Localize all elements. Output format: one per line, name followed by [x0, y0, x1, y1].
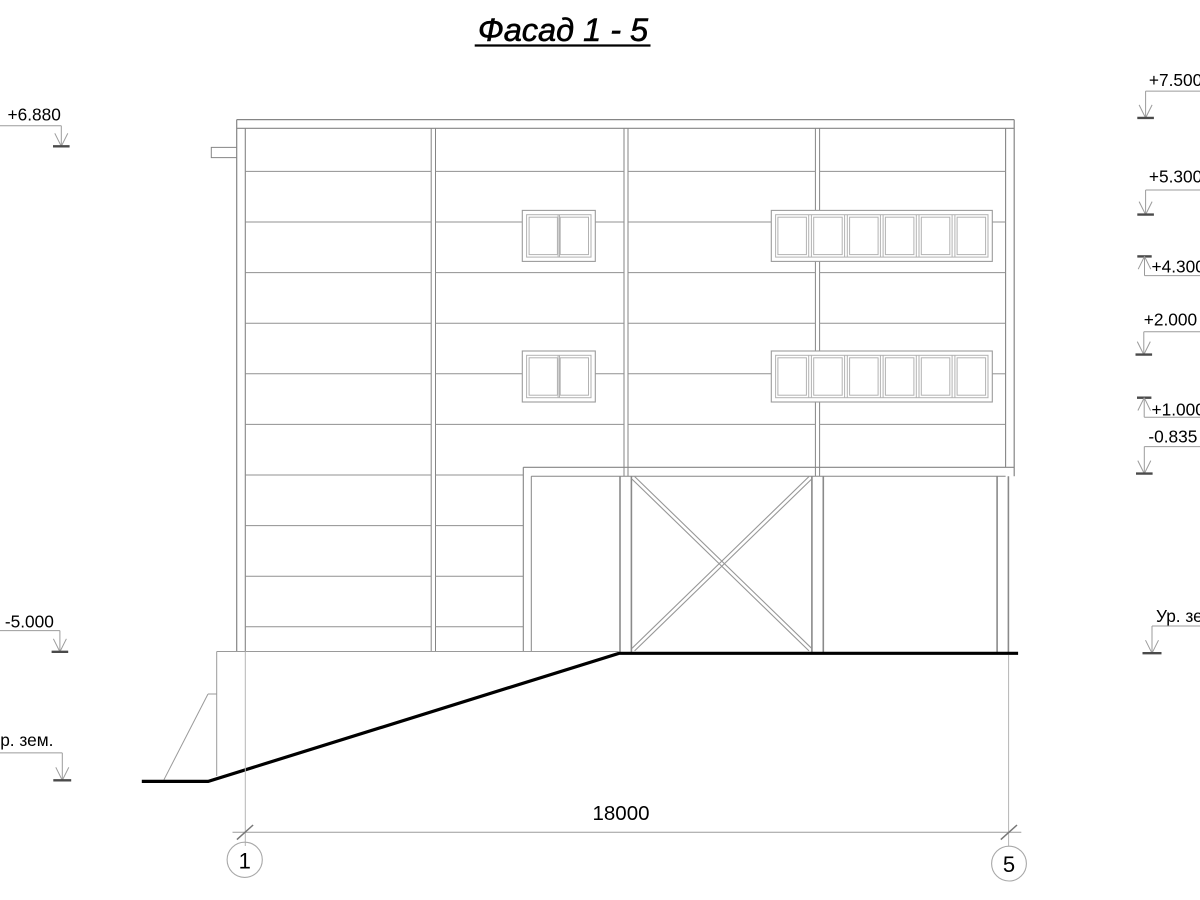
svg-text:-5.000: -5.000	[5, 612, 54, 632]
svg-text:5: 5	[1003, 852, 1015, 877]
svg-text:+2.000: +2.000	[1144, 309, 1197, 329]
svg-text:1: 1	[239, 848, 251, 873]
svg-text:Ур. зем.: Ур. зем.	[1156, 606, 1200, 626]
svg-text:18000: 18000	[592, 802, 649, 825]
svg-text:+6.880: +6.880	[8, 105, 61, 125]
svg-text:+4.300: +4.300	[1152, 257, 1200, 277]
svg-text:-0.835: -0.835	[1148, 426, 1197, 446]
svg-text:р. зем.: р. зем.	[0, 730, 53, 750]
svg-text:+5.300: +5.300	[1149, 166, 1200, 186]
svg-text:+7.500: +7.500	[1149, 70, 1200, 90]
svg-text:+1.000: +1.000	[1152, 400, 1200, 420]
svg-text:Фасад 1 - 5: Фасад 1 - 5	[478, 12, 649, 48]
